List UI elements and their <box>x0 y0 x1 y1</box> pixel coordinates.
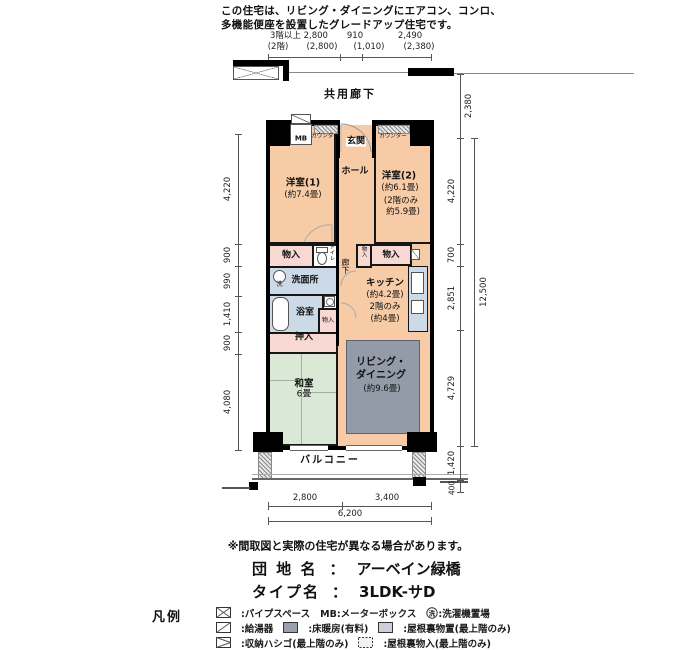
storage2-label: 物入 <box>322 318 334 324</box>
counter-right-label: カウンター <box>379 134 407 140</box>
left-dim-6: 4,080 <box>224 390 233 414</box>
attic-closet-icon <box>358 637 373 648</box>
legend-row-3: :収納ハシゴ(最上階のみ) :屋根裏物入(最上階のみ) <box>216 635 511 650</box>
upper-wall <box>408 68 454 76</box>
wall-right <box>430 120 434 450</box>
toilet-label: トイレ <box>328 244 334 261</box>
legend-floor-heating: :床暖房(有料) <box>308 621 368 635</box>
estate-name-value: アーベイン緑橋 <box>356 558 460 579</box>
oshiire-label: 押入 <box>295 334 313 343</box>
right-dim-total-line <box>474 138 475 446</box>
balcony-end-wall <box>249 482 258 490</box>
right-dim-4: 4,729 <box>448 376 457 400</box>
bath-label: 浴室 <box>296 309 314 318</box>
storage1-label: 物入 <box>282 252 300 261</box>
tick <box>235 134 242 135</box>
right-dim-total: 12,500 <box>480 277 489 307</box>
left-dim-5: 900 <box>224 335 233 351</box>
legend-row-2: :給湯器 :床暖房(有料) :屋根裏物置(最上階のみ) <box>216 620 511 635</box>
living-door-arc <box>340 302 357 319</box>
tick <box>431 54 432 61</box>
tick <box>235 332 242 333</box>
window <box>290 445 328 451</box>
bedroom2-note1: (2階のみ <box>384 197 418 206</box>
tick <box>235 296 242 297</box>
bedroom2-name: 洋室(2) <box>382 171 416 181</box>
legend-row-1: :パイプスペース MB:メーターボックス 洗 :洗濯機置場 <box>216 605 511 620</box>
washing-machine-icon: 洗 <box>273 270 286 283</box>
legend-title: 凡例 <box>152 606 182 625</box>
left-dim-2: 900 <box>224 247 233 263</box>
living-label1: リビング・ <box>356 358 406 368</box>
legend-attic-closet: :屋根裏物入(最上階のみ) <box>383 636 490 650</box>
estate-name-separator: ： <box>329 558 344 579</box>
top-dim-6: (1,010) <box>354 43 385 52</box>
bottom-dim-total: 6,200 <box>338 510 362 519</box>
top-dim-7: (2,380) <box>404 43 435 52</box>
legend-meter-box: MB:メーターボックス <box>320 606 416 620</box>
header-line1: この住宅は、リビング・ダイニングにエアコン、コンロ、 <box>221 4 501 18</box>
washroom-label: 洗面所 <box>291 277 318 286</box>
header-note: この住宅は、リビング・ダイニングにエアコン、コンロ、 多機能便座を設置したグレー… <box>221 4 501 32</box>
left-dim-line <box>238 134 239 450</box>
left-dim-1: 4,220 <box>224 177 233 201</box>
washing-machine-mark: 洗 <box>276 281 282 288</box>
legend-water-heater: :給湯器 <box>241 621 273 635</box>
legend-ladder: :収納ハシゴ(最上階のみ) <box>241 636 348 650</box>
washing-machine-legend-icon: 洗 <box>426 607 438 619</box>
corridor-edge-line <box>289 72 408 73</box>
corner-column <box>266 120 290 146</box>
tick <box>235 266 242 267</box>
right-dim-top: 2,380 <box>465 94 474 118</box>
washitsu-size: 6畳 <box>297 391 312 400</box>
balcony-edge-line <box>252 478 468 480</box>
washbasin-bowl <box>326 298 334 306</box>
tick <box>268 517 269 525</box>
corridor-label: 廊下 <box>341 258 349 274</box>
toilet-bowl-icon <box>317 252 327 265</box>
genkan-wall <box>372 120 376 158</box>
legend-wash-mark: 洗 <box>429 608 436 617</box>
top-dim-3: 2,490 <box>398 32 422 41</box>
top-dim-2: 910 <box>347 32 363 41</box>
small-symbol-box <box>411 249 420 260</box>
top-dim-4: (2階) <box>268 43 289 52</box>
tick <box>431 502 432 510</box>
right-dim-2: 700 <box>448 247 457 263</box>
bottom-dim-line1 <box>268 506 432 507</box>
type-name-label: タイプ名 <box>252 581 320 602</box>
right-dim-edge: 400 <box>448 481 456 495</box>
window <box>346 445 402 451</box>
bedroom2-note2: 約5.9畳) <box>386 208 420 217</box>
balcony-stub-line <box>222 487 250 489</box>
bedroom1-name: 洋室(1) <box>286 178 320 188</box>
right-dim-edge-line <box>460 480 461 492</box>
corner-column <box>253 432 283 452</box>
type-name-value: 3LDK-サD <box>359 581 435 602</box>
pipe-space-icon <box>216 607 231 618</box>
type-name-separator: ： <box>332 581 347 602</box>
living-size: (約9.6畳) <box>363 385 400 394</box>
corridor-edge-line <box>454 73 634 74</box>
tick <box>235 450 242 451</box>
balcony-end-wall <box>413 477 426 486</box>
tick <box>471 138 478 139</box>
right-dim-1: 4,220 <box>448 179 457 203</box>
corner-column <box>407 432 437 452</box>
bottom-dim-line2 <box>268 521 432 522</box>
washitsu-name: 和室 <box>294 379 313 389</box>
bedroom1-door-arc <box>303 224 333 243</box>
floor-heating-icon <box>283 622 298 633</box>
tick <box>457 266 464 267</box>
tick <box>457 492 464 493</box>
right-dim-balcony: 1,420 <box>448 451 457 475</box>
bedroom2-size: (約6.1畳) <box>381 184 418 193</box>
storage3-label: 物入 <box>360 246 366 257</box>
balcony-pier <box>412 452 426 480</box>
tick <box>431 517 432 525</box>
wall-left <box>266 120 270 450</box>
tick <box>340 54 341 61</box>
bottom-dim-1: 2,800 <box>293 494 317 503</box>
legend-block: :パイプスペース MB:メーターボックス 洗 :洗濯機置場 :給湯器 :床暖房(… <box>216 605 511 650</box>
hall-label: ホール <box>341 168 368 177</box>
meter-box-label: MB <box>295 136 307 143</box>
legend-washing-machine: :洗濯機置場 <box>438 606 489 620</box>
right-dim-line-top <box>460 74 461 138</box>
kitchen-stove <box>411 300 424 314</box>
storage4-label: 物入 <box>382 251 399 260</box>
kitchen-name: キッチン <box>366 278 404 288</box>
storage-ladder-icon <box>216 637 231 648</box>
tick <box>362 54 363 61</box>
bathtub-icon <box>272 297 289 331</box>
kitchen-sink <box>411 272 424 294</box>
tick <box>235 354 242 355</box>
living-label2: ダイニング <box>356 371 406 381</box>
estate-name-row: 団 地 名 ： アーベイン緑橋 <box>252 558 461 579</box>
corridor-wall <box>336 158 339 346</box>
genkan-label: 玄関 <box>346 138 366 147</box>
top-dim-5: (2,800) <box>307 43 338 52</box>
estate-name-label: 団 地 名 <box>252 558 317 579</box>
pipe-space-box <box>233 66 279 80</box>
legend-pipe-space: :パイプスペース <box>241 606 310 620</box>
tick <box>457 330 464 331</box>
legend-attic-storage: :屋根裏物置(最上階のみ) <box>403 621 510 635</box>
kitchen-size: (約4.2畳) <box>366 291 403 300</box>
top-dim-line <box>268 57 432 58</box>
floorplan-page: { "colors": { "room_orange": "#f6cba5", … <box>0 0 700 650</box>
bedroom1-size: (約7.4畳) <box>284 191 321 200</box>
kitchen-note2: (約4畳) <box>370 315 399 324</box>
left-dim-3: 990 <box>224 273 233 289</box>
common-corridor-label: 共用廊下 <box>324 89 376 100</box>
balcony-pier <box>258 452 272 480</box>
upper-wall <box>283 60 289 81</box>
tick <box>268 502 269 510</box>
tick <box>235 244 242 245</box>
type-name-row: タイプ名 ： 3LDK-サD <box>252 581 435 602</box>
right-dim-line <box>460 138 461 446</box>
water-heater-box <box>291 114 311 124</box>
corner-column <box>410 120 434 146</box>
kitchen-note1: 2階のみ <box>370 303 401 312</box>
tick <box>471 446 478 447</box>
counter-left-label: カウンター <box>311 134 339 140</box>
attic-storage-icon <box>378 622 393 633</box>
right-dim-balcony-line <box>460 446 461 480</box>
disclaimer-note: ※間取図と実際の住宅が異なる場合があります。 <box>228 541 469 552</box>
balcony-rail-line <box>252 474 468 475</box>
left-dim-4: 1,410 <box>224 302 233 326</box>
bottom-dim-2: 3,400 <box>375 494 399 503</box>
tick <box>457 244 464 245</box>
tick <box>457 74 464 75</box>
legend-washing-item: 洗 :洗濯機置場 <box>426 606 489 620</box>
balcony-label: バルコニー <box>300 456 360 466</box>
right-dim-3: 2,851 <box>448 286 457 310</box>
water-heater-icon <box>216 622 231 633</box>
top-dim-1: 3階以上 2,800 <box>270 32 328 41</box>
